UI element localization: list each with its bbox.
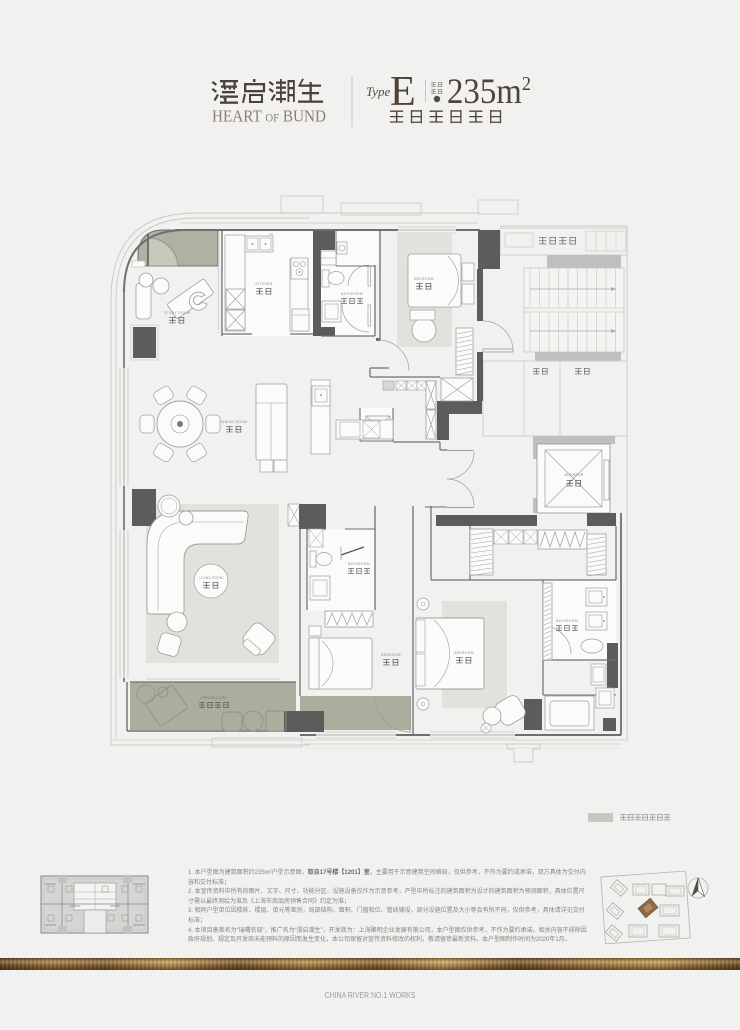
svg-text:STUDY ROOM: STUDY ROOM <box>164 311 190 315</box>
svg-text:Type: Type <box>366 84 391 99</box>
svg-text:BATHROOM: BATHROOM <box>341 292 363 296</box>
svg-text:BEDROOM: BEDROOM <box>381 653 401 657</box>
svg-text:DINING ROOM: DINING ROOM <box>221 420 248 424</box>
svg-text:BEDROOM: BEDROOM <box>454 651 474 655</box>
svg-text:E: E <box>390 69 416 115</box>
svg-text:KITCHEN: KITCHEN <box>256 282 273 286</box>
svg-text:BATHROOM: BATHROOM <box>348 562 370 566</box>
svg-text:BATHROOM: BATHROOM <box>556 619 578 623</box>
svg-text:BEDROOM: BEDROOM <box>414 277 434 281</box>
svg-text:LIVING ROOM: LIVING ROOM <box>199 576 223 580</box>
svg-text:235m2: 235m2 <box>447 71 531 111</box>
svg-text:ELEVATOR: ELEVATOR <box>565 473 584 477</box>
svg-text:OPEN BALCONY: OPEN BALCONY <box>200 696 228 700</box>
